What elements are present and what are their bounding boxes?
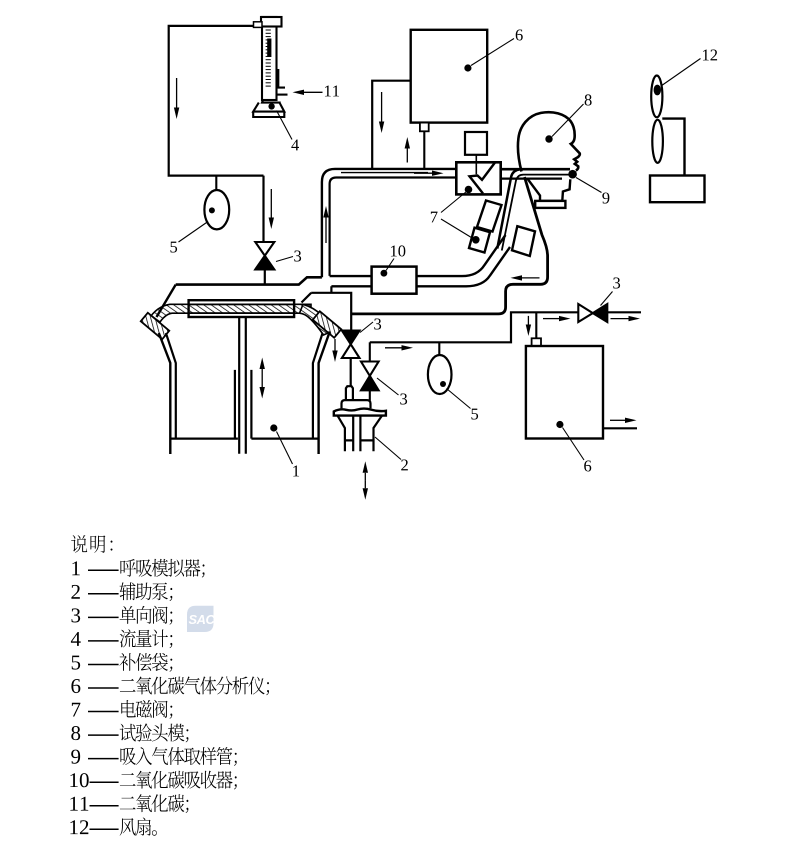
svg-text:SAC: SAC <box>189 612 216 627</box>
